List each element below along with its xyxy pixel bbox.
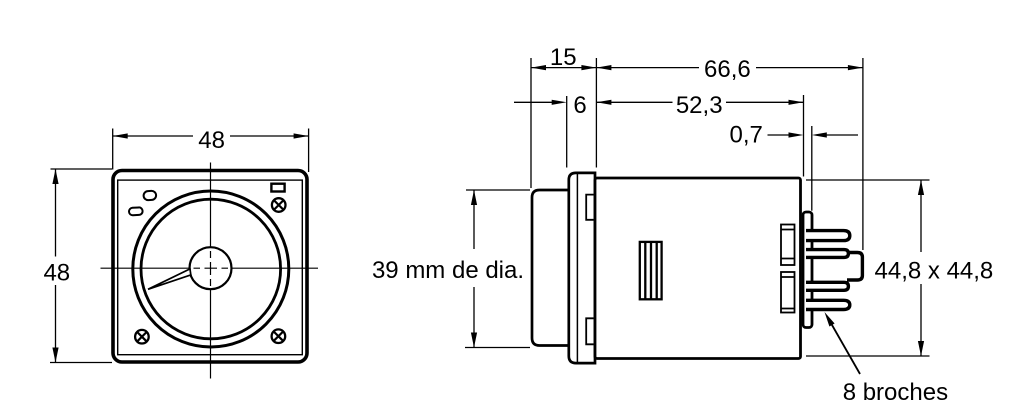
svg-text:6: 6 bbox=[573, 92, 586, 119]
svg-text:48: 48 bbox=[43, 260, 70, 287]
svg-text:52,3: 52,3 bbox=[676, 92, 723, 119]
svg-text:0,7: 0,7 bbox=[730, 122, 763, 149]
svg-text:15: 15 bbox=[550, 44, 577, 71]
svg-text:48: 48 bbox=[198, 127, 225, 154]
svg-text:44,8 x 44,8: 44,8 x 44,8 bbox=[875, 258, 994, 285]
svg-text:66,6: 66,6 bbox=[704, 56, 751, 83]
svg-text:8 broches: 8 broches bbox=[843, 379, 948, 406]
svg-text:39 mm de dia.: 39 mm de dia. bbox=[372, 257, 524, 284]
